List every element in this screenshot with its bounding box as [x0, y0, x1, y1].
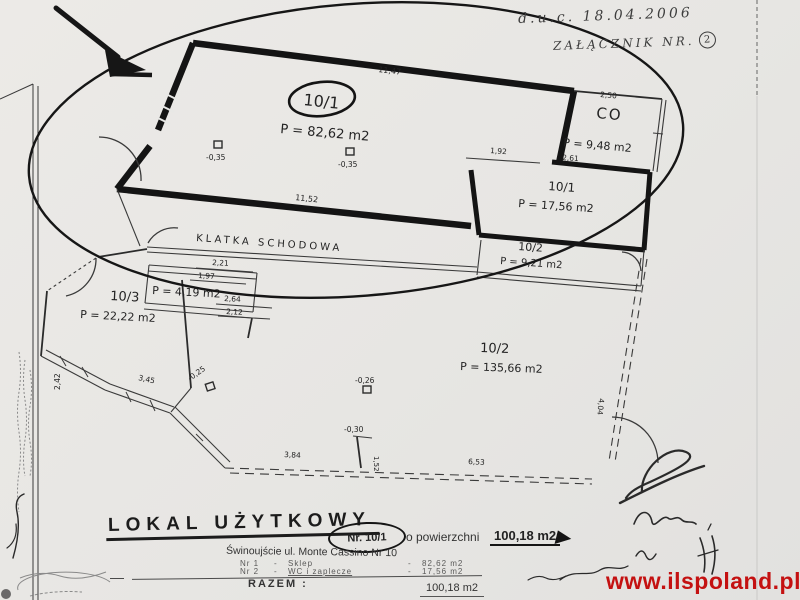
area-text: o powierzchni: [406, 530, 479, 544]
dim: 3,84: [284, 450, 301, 460]
room-shop-id: 10/1: [303, 90, 341, 113]
room-co-area: P = 9,48 m2: [563, 136, 632, 155]
total-value: 100,18 m2: [426, 582, 478, 594]
room-103-id: 10/3: [110, 289, 140, 306]
arrow-annotation: [56, 8, 152, 77]
dim: 4,04: [595, 398, 606, 416]
dim: 11,47: [378, 65, 402, 77]
signature-scribbles: [528, 451, 718, 580]
dim: 1,92: [490, 146, 508, 156]
area-value: 100,18 m2: [490, 528, 560, 546]
row-name: WC i zaplecze: [288, 567, 408, 576]
dim: 6,53: [468, 457, 485, 467]
room-wc-id: 10/1: [548, 179, 576, 195]
dim: 2,61: [562, 153, 580, 163]
room-wc-area: P = 17,56 m2: [518, 197, 594, 215]
total-label: RAZEM :: [248, 578, 308, 590]
dim: 2,64: [224, 294, 241, 304]
dim: 1,52: [372, 456, 380, 472]
handwritten-attachment-label: ZAŁĄCZNIK NR.: [553, 33, 695, 52]
dim: 2,42: [53, 373, 62, 390]
watermark-text: www.ilspoland.pl: [606, 568, 800, 595]
address-line: Świnoujście ul. Monte Cassino Nr 10: [226, 545, 397, 559]
dim: 2,12: [226, 307, 243, 317]
floorplan-drawing: 10/1 P = 82,62 m2 CO P = 9,48 m2 10/1 P …: [0, 0, 800, 600]
room-big2-id: 10/2: [480, 341, 510, 357]
dim: 2,21: [212, 258, 229, 268]
dim: 11,52: [295, 193, 319, 204]
level-mark: -0,26: [355, 376, 375, 385]
level-mark: -0,35: [338, 160, 358, 169]
dim: 3,45: [138, 373, 156, 385]
dim: 1,97: [198, 271, 215, 281]
unit-number: Nr. 10/1: [347, 531, 387, 544]
room-small2-id: 10/2: [518, 240, 544, 255]
scanned-floorplan-page: 10/1 P = 82,62 m2 CO P = 9,48 m2 10/1 P …: [0, 0, 800, 600]
total-value-wrap: 100,18 m2: [420, 582, 484, 597]
level-mark: -0,35: [206, 153, 226, 162]
table-divider-dash: [110, 578, 124, 579]
room-103-area: P = 22,22 m2: [80, 308, 156, 325]
row-dash: -: [274, 567, 288, 576]
room-shop-area: P = 82,62 m2: [280, 122, 370, 145]
row-dash: -: [408, 567, 422, 576]
level-mark-squares: [205, 141, 371, 393]
dim: 2,50: [600, 90, 618, 100]
level-mark: -0,30: [344, 425, 364, 434]
room-co-id: CO: [596, 104, 624, 124]
table-row: Nr 2 - WC i zaplecze - 17,56 m2: [240, 567, 463, 576]
row-no: Nr 2: [240, 567, 274, 576]
attachment-number-circle: 2: [698, 31, 716, 49]
room-big2-area: P = 135,66 m2: [460, 360, 543, 376]
